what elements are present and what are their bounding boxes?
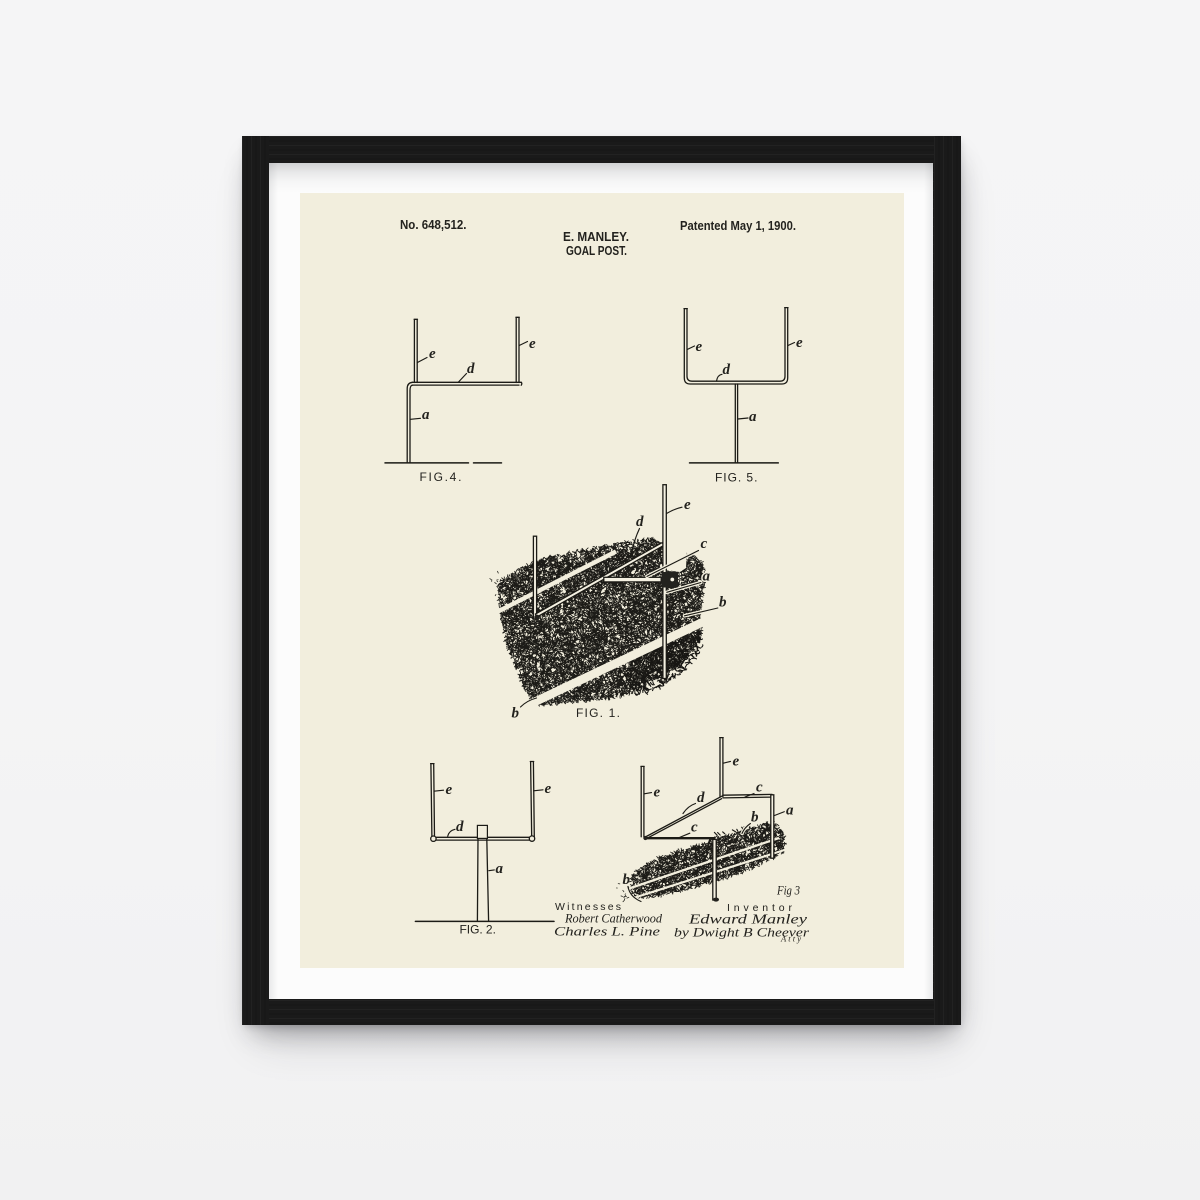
svg-text:d: d xyxy=(723,362,731,378)
svg-text:d: d xyxy=(467,361,475,377)
svg-text:e: e xyxy=(529,336,536,352)
svg-text:c: c xyxy=(701,536,708,552)
svg-text:d: d xyxy=(697,790,705,806)
svg-text:b: b xyxy=(719,595,727,611)
svg-text:e: e xyxy=(684,497,691,513)
svg-text:e: e xyxy=(549,553,556,569)
svg-text:d: d xyxy=(636,514,644,530)
svg-text:FIG. 1.: FIG. 1. xyxy=(576,706,622,720)
svg-text:e: e xyxy=(796,335,803,351)
svg-text:FIG. 5.: FIG. 5. xyxy=(715,471,759,485)
svg-text:c: c xyxy=(691,820,698,836)
svg-text:e: e xyxy=(429,346,436,362)
svg-text:a: a xyxy=(786,803,794,819)
svg-text:b: b xyxy=(512,706,520,722)
svg-text:FIG.4.: FIG.4. xyxy=(420,470,464,484)
svg-text:b: b xyxy=(623,872,631,888)
svg-text:Patented May 1, 1900.: Patented May 1, 1900. xyxy=(680,218,796,233)
svg-text:a: a xyxy=(496,861,504,877)
svg-text:e: e xyxy=(446,782,453,798)
svg-text:a: a xyxy=(422,407,430,423)
svg-text:d: d xyxy=(456,819,464,835)
svg-text:b: b xyxy=(751,810,759,826)
svg-text:e: e xyxy=(696,339,703,355)
svg-text:e: e xyxy=(654,785,661,801)
svg-text:e: e xyxy=(733,754,740,770)
svg-text:e: e xyxy=(545,781,552,797)
svg-text:a: a xyxy=(703,569,711,585)
svg-text:FIG. 2.: FIG. 2. xyxy=(460,923,498,937)
svg-text:c: c xyxy=(756,780,763,796)
svg-text:No. 648,512.: No. 648,512. xyxy=(400,217,467,232)
svg-text:Fig 3: Fig 3 xyxy=(776,883,800,898)
svg-text:Charles L. Pine: Charles L. Pine xyxy=(554,924,660,939)
svg-text:Atty: Atty xyxy=(780,934,801,944)
svg-text:E. MANLEY.: E. MANLEY. xyxy=(563,229,629,244)
svg-text:GOAL POST.: GOAL POST. xyxy=(566,244,627,258)
svg-text:a: a xyxy=(749,409,757,425)
